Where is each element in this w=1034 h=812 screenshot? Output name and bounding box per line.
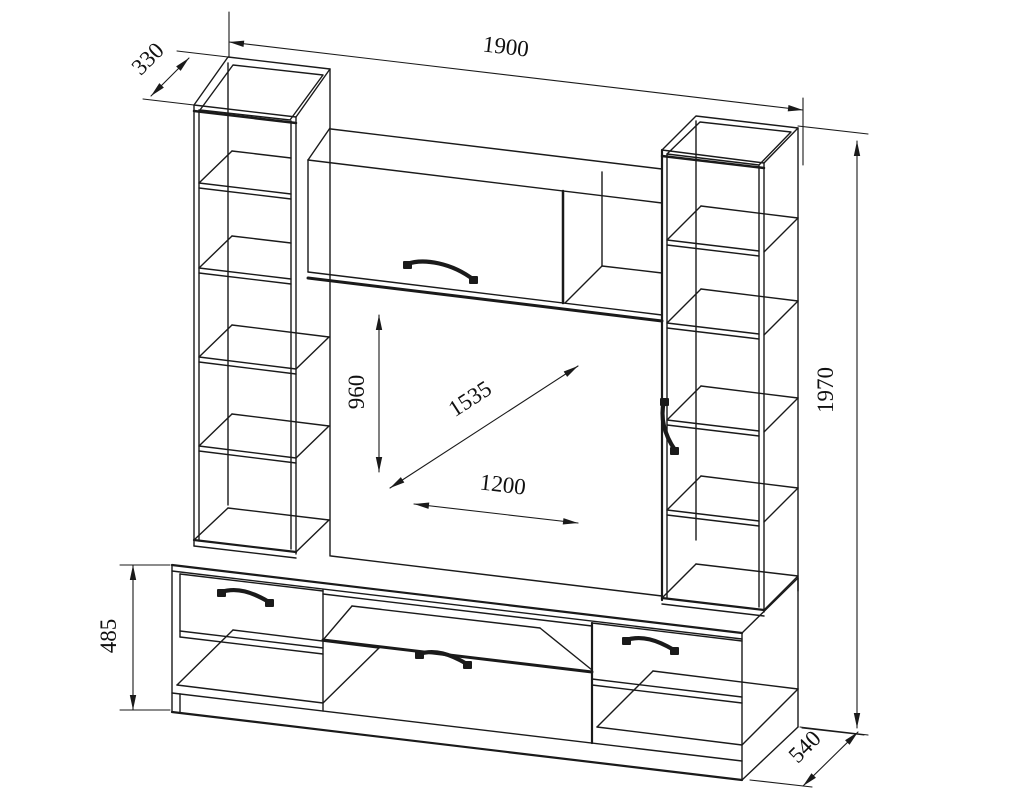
dimension-niche-width: 1200 (414, 469, 578, 523)
dimension-niche-height: 960 (344, 315, 379, 472)
dimension-base-height: 485 (96, 565, 170, 710)
left-shelf-tower (194, 57, 330, 558)
dim-label-overall-height: 1970 (813, 367, 838, 413)
right-open-compartment (597, 671, 798, 745)
dim-label-overall-width: 1900 (482, 31, 531, 61)
base-cabinet (172, 565, 798, 780)
right-drawer-handle (622, 637, 679, 655)
center-drawer-handle (415, 651, 472, 669)
flap-door-handle (403, 261, 478, 284)
left-drawer-handle (217, 589, 274, 607)
dim-label-niche-width: 1200 (479, 469, 528, 499)
center-drawer (323, 640, 592, 672)
dim-label-niche-height: 960 (344, 375, 369, 410)
dimension-tower-depth: 330 (127, 38, 228, 105)
dimension-overall-width: 1900 (229, 12, 803, 165)
dim-label-tower-depth: 330 (127, 38, 169, 80)
right-shelf-tower (660, 116, 798, 616)
dimension-overall-height: 1970 (798, 126, 868, 735)
technical-drawing: 1900 330 1970 485 540 960 1535 1200 (0, 0, 1034, 812)
dim-label-niche-diagonal: 1535 (444, 376, 496, 422)
dim-label-base-depth: 540 (784, 726, 826, 768)
drawing-canvas: 1900 330 1970 485 540 960 1535 1200 (0, 0, 1034, 812)
right-drawer (592, 623, 742, 703)
top-bridge-cabinet (308, 128, 662, 321)
dim-label-base-height: 485 (96, 619, 121, 654)
